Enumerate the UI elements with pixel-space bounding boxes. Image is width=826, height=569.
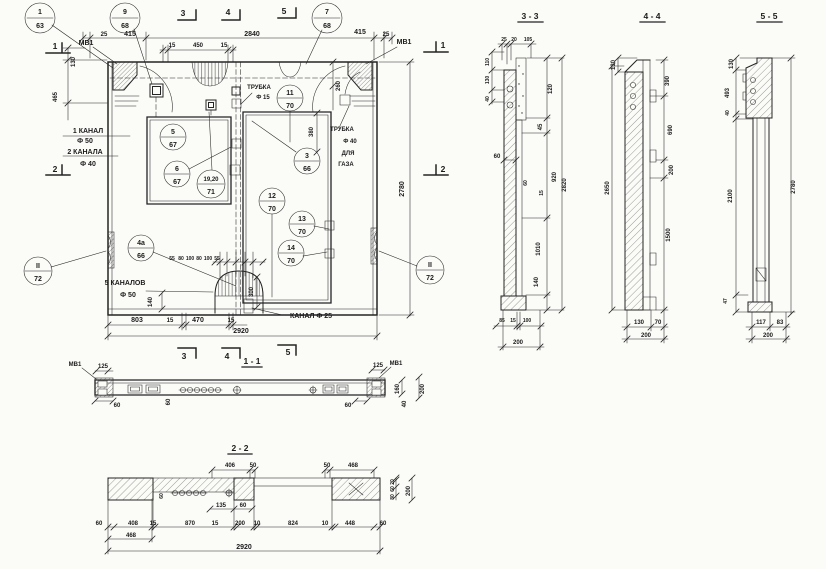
- dim-ch-55a: 55: [169, 256, 175, 262]
- callout-num: 19,20: [203, 177, 219, 183]
- callout-II-72-right: II 72: [416, 256, 444, 284]
- s22-block-left: [108, 478, 153, 500]
- note-5-kanalov: 5 КАНАЛОВ: [105, 280, 146, 287]
- s44-right-1500: 1500: [666, 228, 672, 242]
- s33-bot-85: 85: [499, 318, 505, 324]
- s55-upper-block: [746, 58, 772, 118]
- corner-reveal-arcs: [140, 66, 345, 112]
- s33-lower-layer: [516, 120, 522, 296]
- s11-channel-circles: [179, 386, 317, 394]
- note-trubka15: ТРУБКА: [247, 85, 271, 91]
- embed-anchor-left: [113, 62, 137, 90]
- s55-hole-square: [756, 268, 766, 281]
- note-trubka40: ТРУБКА: [330, 127, 354, 133]
- s22-total-2920: 2920: [236, 544, 252, 551]
- s44-top-slant: [625, 60, 650, 72]
- joint-strip-left: [108, 232, 114, 268]
- dim-top-25b: 25: [383, 32, 390, 38]
- s22-bot-448: 448: [345, 521, 356, 527]
- s22-mid-60a: 60: [159, 493, 165, 499]
- section-3-3-title: 3 - 3: [521, 11, 538, 21]
- dim-ch-80b: 80: [196, 256, 202, 262]
- dim-bot-470: 470: [192, 317, 204, 324]
- s33-outer-layer: [516, 58, 526, 120]
- s22-top-468: 468: [348, 463, 359, 469]
- s55-right-2780: 2780: [791, 180, 797, 194]
- s33-l60: 60: [494, 154, 501, 160]
- callout-num: 9: [123, 9, 127, 16]
- dim-inner-380: 380: [309, 126, 315, 137]
- s44-right-layer: [643, 60, 650, 310]
- marker-4-top: 4: [226, 7, 231, 17]
- s44-bot-200: 200: [641, 333, 652, 339]
- section-1-1: 1 - 1 МВ1 МВ1 125 125 60 60 60 160 200 4…: [69, 356, 426, 409]
- s44-left-2650: 2650: [605, 181, 611, 195]
- embed-anchor-right: [348, 62, 372, 90]
- panel-working-drawing: 25 415 15 450 15 2840 415 25 МВ1 МВ1 1 2…: [0, 0, 826, 569]
- dim-ch-100a: 100: [186, 256, 195, 262]
- s22-bot-200: 200: [235, 521, 246, 527]
- s22-mid-60b: 60: [240, 503, 247, 509]
- s22-bot-15b: 15: [212, 521, 219, 527]
- s33-inner-60: 60: [523, 180, 529, 186]
- drawing-sheet: 25 415 15 450 15 2840 415 25 МВ1 МВ1 1 2…: [0, 0, 826, 569]
- marker-3-bottom: 3: [182, 351, 187, 361]
- s44-bot-130: 130: [634, 320, 645, 326]
- callout-13-70: 13 70: [289, 211, 315, 237]
- s44-left-130: 130: [611, 59, 617, 70]
- callout-page: 67: [173, 179, 181, 186]
- callout-num: 4а: [137, 240, 145, 247]
- callout-page: 67: [169, 142, 177, 149]
- dim-right-2780: 2780: [399, 181, 406, 197]
- callout-num: 1: [38, 9, 42, 16]
- top-recess: [192, 62, 228, 86]
- callout-num: 12: [268, 193, 276, 200]
- callout-num: 7: [325, 9, 329, 16]
- dim-top-25a: 25: [101, 32, 108, 38]
- s33-top-25: 25: [501, 37, 507, 43]
- s11-leaders: [82, 367, 391, 379]
- s33-right-120: 120: [548, 83, 554, 94]
- marker-5-top: 5: [282, 6, 287, 16]
- s22-top-50a: 50: [250, 463, 257, 469]
- s22-bot-60a: 60: [96, 521, 103, 527]
- channel-outlet: [244, 299, 253, 313]
- marker-1-right: 1: [441, 40, 446, 50]
- callout-7-68: 7 68: [312, 3, 342, 33]
- s55-left-130: 130: [729, 58, 735, 69]
- note-2-kanala-d: Ф 40: [80, 161, 96, 168]
- dim-left-465: 465: [53, 91, 59, 102]
- s22-right-200: 200: [406, 485, 412, 496]
- s55-bot-83: 83: [777, 320, 784, 326]
- callout-page: 66: [137, 253, 145, 260]
- s33-bot-200: 200: [513, 340, 524, 346]
- callout-14-70: 14 70: [278, 240, 304, 266]
- callout-5-67: 5 67: [160, 124, 186, 150]
- left-opening: [147, 117, 231, 204]
- marker-1-left: 1: [53, 41, 58, 51]
- s22-right-80: 80: [390, 494, 396, 500]
- dim-top-15b: 15: [221, 43, 228, 49]
- note-trubka40-d: Ф 40: [343, 139, 357, 145]
- s55-left-2100: 2100: [728, 189, 734, 203]
- callout-page: 70: [287, 258, 295, 265]
- s44-keys: [643, 90, 656, 310]
- callout-12-70: 12 70: [259, 188, 285, 214]
- callout-num: II: [428, 262, 432, 269]
- note-kanal-25: КАНАЛ Ф 25: [290, 313, 332, 320]
- callout-11-70: 11 70: [277, 85, 303, 111]
- callout-page: 70: [268, 206, 276, 213]
- callout-page: 63: [36, 23, 44, 30]
- s55-left-493: 493: [725, 87, 731, 98]
- callout-page: 66: [303, 166, 311, 173]
- s22-sub-468: 468: [126, 533, 137, 539]
- s22-bot-408: 408: [128, 521, 139, 527]
- s33-top-105: 105: [524, 37, 533, 43]
- s44-right-390: 390: [665, 75, 671, 86]
- section-4-4-title: 4 - 4: [643, 11, 660, 21]
- callout-4a-66: 4а 66: [128, 235, 154, 261]
- s11-d200: 200: [420, 383, 426, 394]
- callout-1920-71: 19,20 71: [197, 170, 225, 198]
- callout-num: II: [36, 263, 40, 270]
- callout-num: 13: [298, 216, 306, 223]
- s33-right-140: 140: [534, 276, 540, 287]
- callout-page: 68: [323, 23, 331, 30]
- dim-ch-80a: 80: [178, 256, 184, 262]
- s11-d40: 40: [402, 400, 408, 407]
- embed-label-left: МВ1: [79, 40, 94, 47]
- embed-label-right: МВ1: [397, 39, 412, 46]
- dim-inner-300: 300: [249, 286, 255, 297]
- s22-slab-recess1: [153, 478, 234, 492]
- s55-bot-200: 200: [763, 333, 774, 339]
- callout-num: 14: [287, 245, 295, 252]
- s44-bot-70: 70: [655, 320, 662, 326]
- marker-3-top: 3: [181, 8, 186, 18]
- callout-page: 68: [121, 23, 129, 30]
- s33-left-40: 40: [485, 96, 491, 102]
- marker-5-bottom: 5: [286, 347, 291, 357]
- s33-right-45: 45: [538, 123, 544, 130]
- s33-left-130: 130: [485, 76, 491, 85]
- s33-bot-15: 15: [510, 318, 516, 324]
- callout-page: 72: [34, 276, 42, 283]
- callout-page: 71: [207, 189, 215, 196]
- callout-num: 6: [175, 166, 179, 173]
- section-4-4: 4 - 4 130 2650 390 690 200 1500 130 70 2…: [605, 11, 675, 343]
- dim-bot-803: 803: [131, 317, 143, 324]
- callout-num: 3: [305, 153, 309, 160]
- s33-right-920: 920: [552, 171, 558, 182]
- dim-top-450: 450: [193, 43, 204, 49]
- joint-strip-right: [371, 228, 377, 264]
- s22-bot-870: 870: [185, 521, 196, 527]
- dim-bot-15a: 15: [167, 318, 174, 324]
- dim-ch-100b: 100: [204, 256, 213, 262]
- marker-2-right: 2: [441, 164, 446, 174]
- s22-bot-15a: 15: [150, 521, 157, 527]
- dim-top-2840: 2840: [244, 31, 260, 38]
- callout-6-67: 6 67: [164, 161, 190, 187]
- main-elevation-view: 25 415 15 450 15 2840 415 25 МВ1 МВ1 1 2…: [24, 3, 448, 361]
- s11-embed-left: МВ1: [69, 362, 82, 368]
- section-5-5: 5 - 5 130 493 40 2100 47 2780 117 83 200: [723, 11, 797, 343]
- s44-body: [625, 72, 643, 310]
- callout-3-66: 3 66: [294, 148, 320, 174]
- s11-embed-right: МВ1: [390, 361, 403, 367]
- note-trubka15-d: Ф 15: [256, 95, 270, 101]
- s55-left-47: 47: [723, 298, 729, 304]
- callout-num: 11: [286, 90, 294, 97]
- s11-void-rects: [128, 385, 348, 393]
- s44-right-200: 200: [669, 164, 675, 175]
- right-opening-inner: [246, 115, 328, 300]
- s33-bot-100: 100: [523, 318, 532, 324]
- dim-left-130: 130: [71, 56, 77, 67]
- s11-d60l: 60: [114, 403, 121, 409]
- s55-left-40: 40: [725, 110, 731, 116]
- callout-page: 72: [426, 275, 434, 282]
- dim-bot-2920: 2920: [233, 328, 249, 335]
- s22-top-406: 406: [225, 463, 236, 469]
- section-5-5-title: 5 - 5: [760, 11, 777, 21]
- s11-d125l: 125: [98, 364, 109, 370]
- callout-II-72-left: II 72: [24, 257, 52, 285]
- s33-top-20: 20: [511, 37, 517, 43]
- callout-9-68: 9 68: [110, 3, 140, 33]
- dim-inner-140: 140: [148, 296, 154, 307]
- s11-d60m: 60: [166, 398, 172, 405]
- marker-4-bottom: 4: [225, 351, 230, 361]
- five-channel-dome-hatch: [215, 271, 263, 296]
- s33-inner-15: 15: [539, 190, 545, 196]
- s33-left-110: 110: [485, 58, 491, 66]
- note-1-kanal-d: Ф 50: [77, 138, 93, 145]
- s33-right-1010: 1010: [536, 242, 542, 256]
- fixture-squares: [150, 84, 240, 110]
- note-dlya: ДЛЯ: [342, 151, 355, 157]
- s22-mid-135: 135: [216, 503, 227, 509]
- callout-1-63: 1 63: [25, 3, 55, 33]
- s22-top-50b: 50: [324, 463, 331, 469]
- s11-d160: 160: [395, 383, 401, 394]
- dim-bot-15b: 15: [228, 318, 235, 324]
- section-2-2-title: 2 - 2: [231, 443, 248, 453]
- note-2-kanala: 2 КАНАЛА: [67, 149, 102, 156]
- right-opening: [243, 112, 331, 303]
- dim-top-15a: 15: [169, 43, 176, 49]
- s33-foot: [501, 296, 526, 310]
- s22-bot-10a: 10: [254, 521, 261, 527]
- section-3-3: 3 - 3 25 20 105 110 130 40 60 60 15 120 …: [485, 11, 568, 350]
- note-1-kanal: 1 КАНАЛ: [73, 128, 103, 135]
- s33-right-2820: 2820: [562, 178, 568, 192]
- section-2-2: 2 - 2 406 50 50 468 60 135 60 60 408 15 …: [96, 443, 415, 554]
- dim-right-260: 260: [336, 80, 342, 91]
- s22-bot-824: 824: [288, 521, 299, 527]
- s22-right-60: 60: [390, 486, 396, 492]
- s55-foot: [748, 302, 772, 312]
- s55-bot-117: 117: [756, 320, 766, 326]
- s11-d60r: 60: [345, 403, 352, 409]
- callout-page: 70: [298, 229, 306, 236]
- marker-2-left: 2: [53, 164, 58, 174]
- left-opening-inner: [150, 120, 228, 201]
- dim-ch-55b: 55: [214, 256, 220, 262]
- s22-pier: [234, 478, 254, 500]
- s22-slab-recess2: [254, 478, 332, 486]
- section-marker-ticks: [46, 8, 448, 358]
- s22-bot-60b: 60: [380, 521, 387, 527]
- note-gaza: ГАЗА: [338, 162, 354, 168]
- callout-num: 5: [171, 129, 175, 136]
- s22-right-20: 20: [390, 479, 396, 485]
- s33-stipple-dots: [518, 65, 523, 113]
- note-5-kanalov-d: Ф 50: [120, 292, 136, 299]
- s33-body: [504, 70, 516, 296]
- s22-bot-10b: 10: [322, 521, 329, 527]
- s11-d125r: 125: [373, 363, 384, 369]
- s44-right-690: 690: [668, 124, 674, 135]
- dim-top-415b: 415: [354, 29, 366, 36]
- callout-page: 70: [286, 103, 294, 110]
- section-1-1-title: 1 - 1: [243, 356, 260, 366]
- top-small-reveal: [279, 62, 301, 77]
